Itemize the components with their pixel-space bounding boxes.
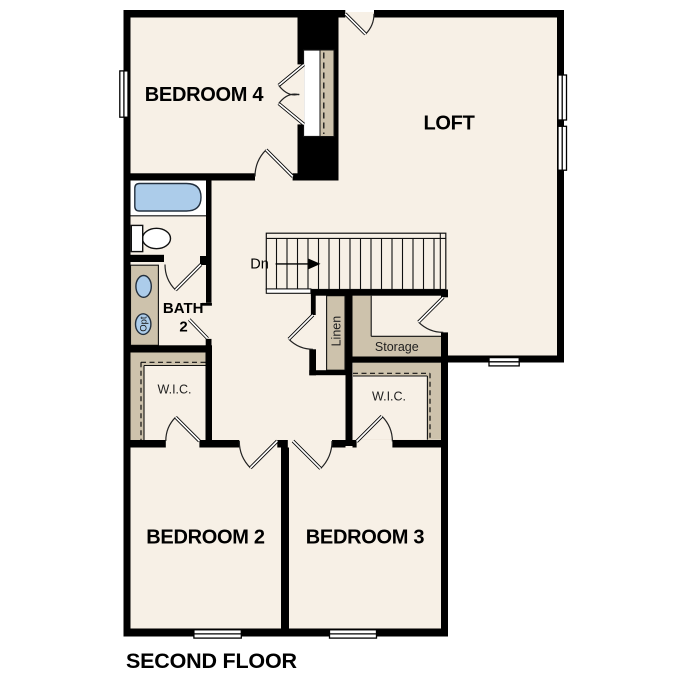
svg-text:W.I.C.: W.I.C. xyxy=(157,383,191,397)
svg-text:Linen: Linen xyxy=(329,316,343,347)
svg-text:BATH: BATH xyxy=(163,300,204,317)
svg-text:Dn: Dn xyxy=(250,257,269,273)
svg-text:2: 2 xyxy=(179,319,187,336)
svg-text:SECOND FLOOR: SECOND FLOOR xyxy=(126,649,297,673)
svg-text:Opt: Opt xyxy=(138,316,149,332)
svg-text:W.I.C.: W.I.C. xyxy=(372,390,406,404)
svg-text:BEDROOM 4: BEDROOM 4 xyxy=(145,84,265,106)
svg-text:BEDROOM 3: BEDROOM 3 xyxy=(306,527,425,549)
svg-text:LOFT: LOFT xyxy=(423,113,474,135)
svg-text:Storage: Storage xyxy=(375,340,419,354)
svg-text:BEDROOM 2: BEDROOM 2 xyxy=(146,527,265,549)
